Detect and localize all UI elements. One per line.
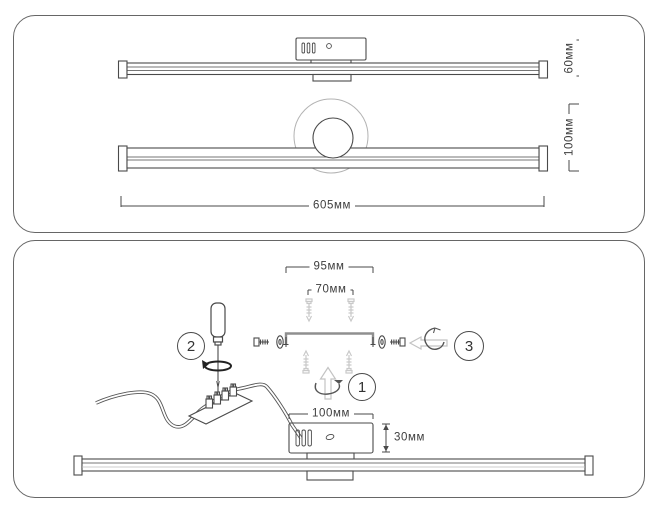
washer-icon: [379, 336, 385, 348]
dim-605mm-label: 605мм: [309, 200, 355, 213]
keyhole-icon: [325, 433, 334, 440]
installation-drawing: [14, 241, 646, 497]
mounting-bracket: [284, 334, 376, 348]
dim-100mm-label: 100мм: [564, 114, 577, 160]
end-cap-right: [539, 146, 548, 171]
lamp-assembled: [74, 453, 593, 480]
end-cap-left: [74, 456, 82, 475]
dimensions-panel: 60мм 100мм 605мм: [13, 15, 645, 233]
terminal-block: [189, 384, 252, 424]
rotate-icon: [202, 360, 231, 371]
bolt-icon: [390, 338, 405, 346]
end-cap-left: [119, 146, 128, 171]
screw-icon: [346, 351, 352, 373]
screw-hole-icon: [327, 44, 332, 49]
end-cap-left: [119, 61, 128, 78]
driver-box-top-view: [296, 38, 366, 60]
dim-95mm-label: 95мм: [309, 261, 348, 274]
screw-icon: [306, 299, 312, 321]
screwdriver-handle: [211, 303, 225, 337]
lamp-top-view: [119, 38, 548, 81]
bracket-bar: [286, 334, 373, 345]
screwdriver-neck: [214, 337, 223, 342]
side-fasteners: [254, 336, 405, 348]
lamp-front-view: [119, 99, 548, 173]
step-3-badge: 3: [454, 331, 484, 361]
dim-100mm-label: 100мм: [308, 408, 354, 421]
lamp-bar: [127, 63, 539, 75]
dim-70mm-label: 70мм: [311, 284, 350, 297]
canopy: [289, 423, 373, 453]
screwdriver-icon: [211, 303, 225, 394]
washer-icon: [277, 336, 283, 348]
vent-slots-icon: [302, 43, 315, 53]
screw-icon: [303, 351, 309, 373]
wall-screws: [303, 299, 354, 373]
step-1-badge: 1: [348, 373, 376, 401]
dim-30mm-label: 30мм: [392, 432, 427, 445]
end-cap-right: [585, 456, 593, 475]
step-2-badge: 2: [177, 332, 205, 360]
bar-clamp: [307, 471, 353, 480]
installation-panel: 95мм 70мм 100мм 30мм 1 2 3: [13, 240, 645, 498]
screwdriver-collar: [215, 342, 221, 345]
end-cap-right: [539, 61, 548, 78]
lamp-bar: [82, 459, 585, 471]
bracket-feet: [284, 337, 376, 347]
swivel-joint-circle: [313, 118, 353, 158]
dim-60mm-label: 60мм: [564, 38, 577, 77]
screw-icon: [348, 299, 354, 321]
bolt-icon: [254, 338, 269, 346]
bar-clamp: [313, 75, 351, 82]
